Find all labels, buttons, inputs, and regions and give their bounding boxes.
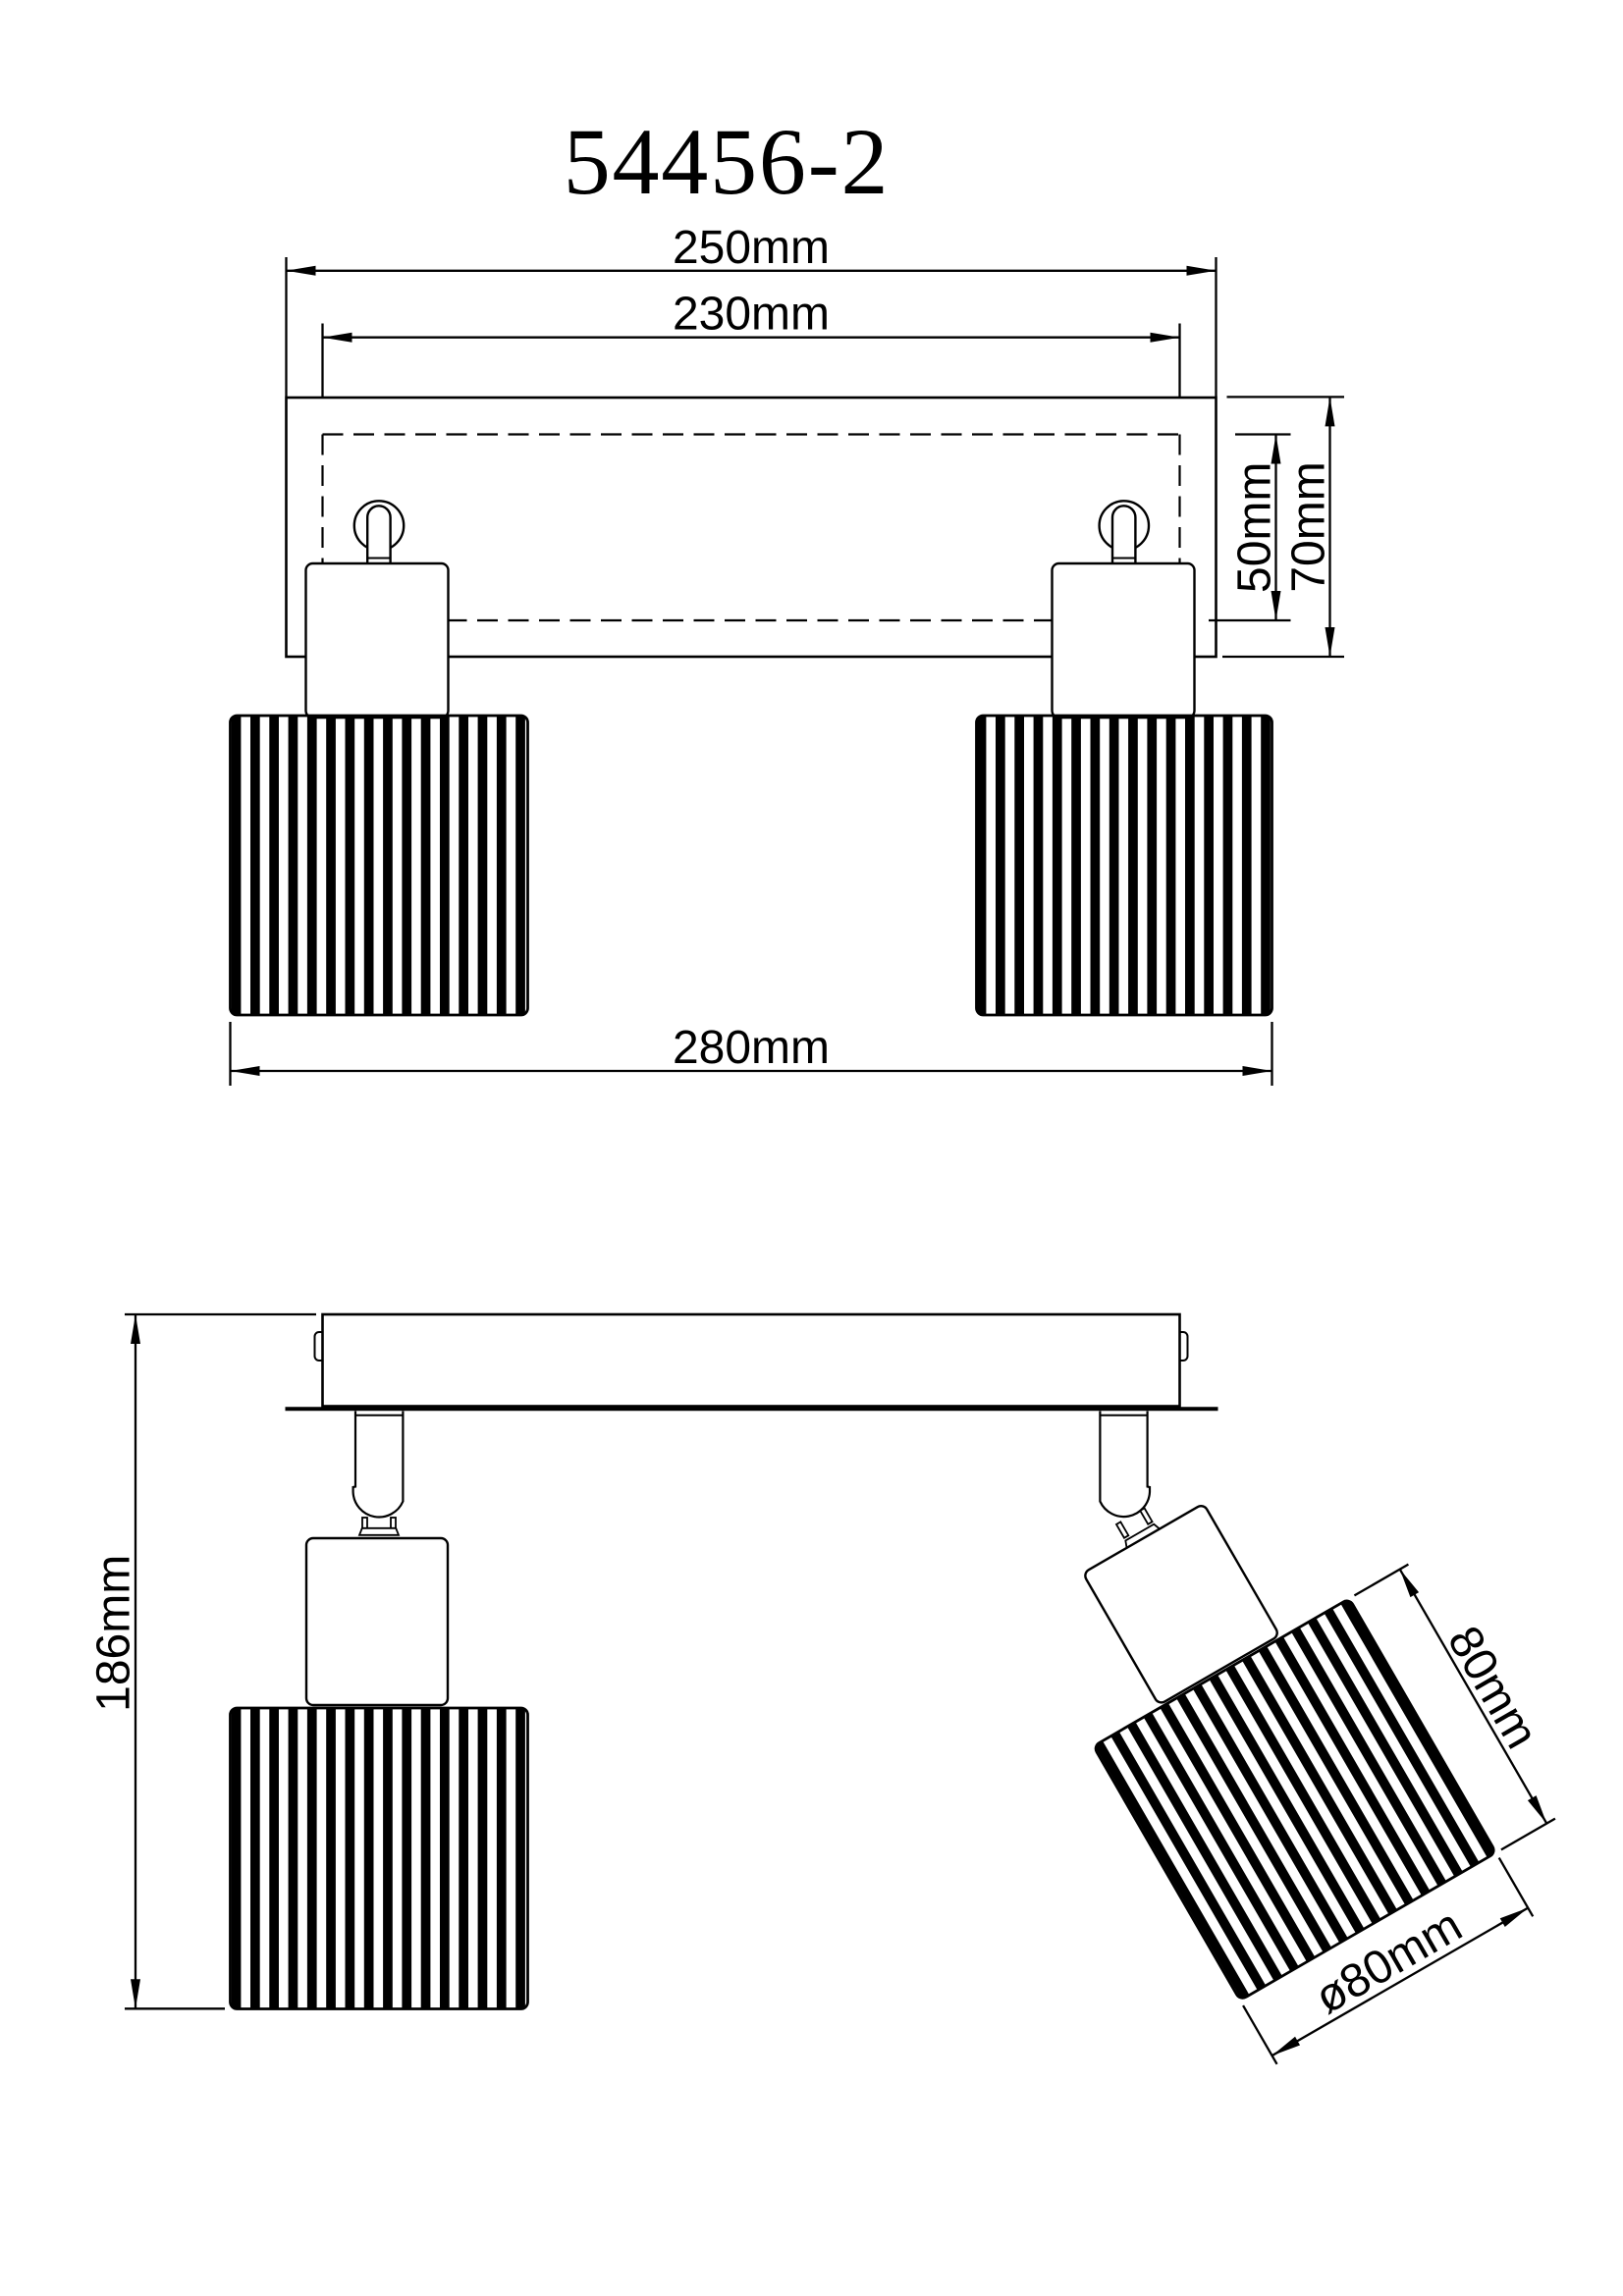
svg-text:50mm: 50mm: [1229, 462, 1281, 593]
svg-text:186mm: 186mm: [88, 1555, 140, 1712]
svg-text:70mm: 70mm: [1283, 461, 1335, 592]
svg-text:280mm: 280mm: [673, 1022, 830, 1074]
svg-text:230mm: 230mm: [673, 289, 830, 341]
svg-text:250mm: 250mm: [673, 222, 830, 274]
svg-text:54456-2: 54456-2: [564, 109, 891, 214]
